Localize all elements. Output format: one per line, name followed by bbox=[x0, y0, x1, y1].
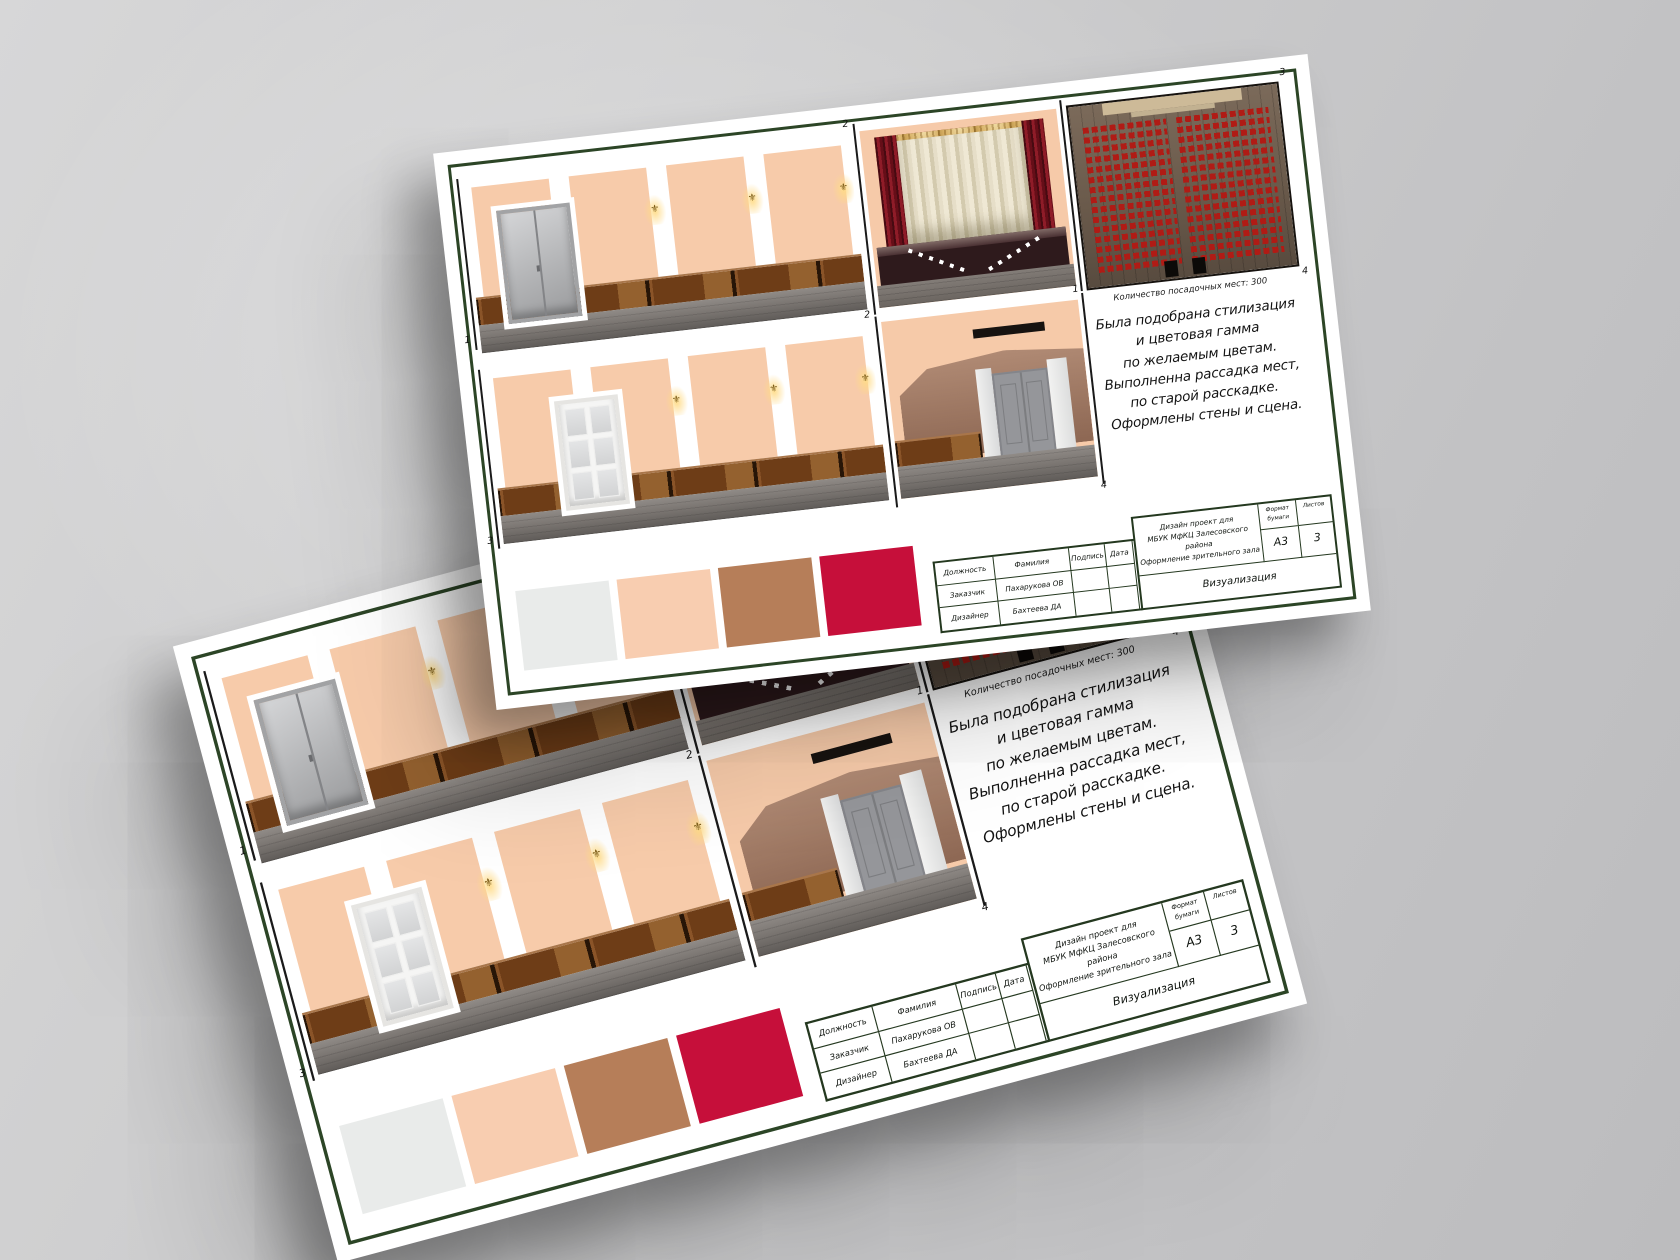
wall-panel bbox=[494, 809, 612, 953]
color-swatch-white bbox=[515, 580, 617, 670]
view-number: 1 bbox=[1072, 283, 1079, 295]
wall-panel bbox=[569, 168, 659, 286]
sconce-icon: ⚜ bbox=[642, 194, 667, 226]
door-pane bbox=[571, 471, 595, 501]
gray-double-door bbox=[496, 202, 582, 324]
designer-signature-cell bbox=[1074, 589, 1112, 616]
door-pane bbox=[564, 407, 588, 437]
projection-window bbox=[973, 322, 1046, 339]
stage-steps-right bbox=[988, 233, 1044, 271]
door-pane bbox=[363, 907, 394, 944]
sheet-count-value: 3 bbox=[1299, 522, 1336, 556]
plan-entrance bbox=[1192, 257, 1207, 274]
view-number: 2 bbox=[842, 118, 849, 130]
paper-format-value: A3 bbox=[1261, 526, 1301, 560]
projection-window bbox=[811, 733, 893, 764]
wall-panel bbox=[666, 156, 756, 274]
door-pane bbox=[373, 942, 404, 979]
elevation-view-exit-wall: ⚜ ⚜ ⚜ bbox=[484, 323, 890, 544]
sconce-icon: ⚜ bbox=[664, 384, 689, 416]
sheet-count-label: Листов bbox=[1296, 496, 1333, 526]
view-number: 4 bbox=[980, 900, 990, 914]
stage-view bbox=[859, 109, 1076, 308]
wall-panel bbox=[688, 347, 778, 465]
door-pane bbox=[410, 970, 441, 1007]
view-number: 1 bbox=[915, 684, 925, 698]
main-curtain bbox=[897, 127, 1034, 247]
door-pane bbox=[391, 899, 422, 936]
door-pane bbox=[568, 439, 592, 469]
door-pane bbox=[589, 404, 613, 434]
notes-text: Была подобрана стилизация и цветовая гам… bbox=[930, 654, 1219, 856]
view-number: 2 bbox=[685, 748, 695, 762]
header-date: Дата bbox=[1105, 541, 1135, 567]
sheet-content: ⚜ ⚜ ⚜ bbox=[462, 83, 1342, 681]
designer-date-cell bbox=[1110, 586, 1140, 612]
plan-entrance bbox=[1164, 260, 1179, 277]
customer-date-cell bbox=[1107, 563, 1137, 589]
white-glazed-door bbox=[554, 394, 630, 511]
view-number: 3 bbox=[487, 535, 494, 547]
seating-plan bbox=[1066, 81, 1300, 290]
view-number: 4 bbox=[1100, 479, 1107, 491]
sheet-count-cell: Листов 3 bbox=[1296, 496, 1336, 557]
seat-block-right bbox=[1176, 107, 1285, 267]
door-pane bbox=[400, 935, 431, 972]
paper-format-cell: Формат бумаги A3 bbox=[1258, 500, 1302, 562]
wall-panel bbox=[763, 145, 853, 263]
seat-block-left bbox=[1082, 118, 1182, 277]
background: ⚜ ⚜ ⚜ bbox=[0, 0, 1680, 1260]
sconce-icon: ⚜ bbox=[853, 363, 878, 395]
color-swatch-white bbox=[339, 1098, 466, 1214]
color-swatch-peach bbox=[617, 569, 719, 659]
door-pane bbox=[382, 977, 413, 1014]
sheet-front: ⚜ ⚜ ⚜ bbox=[433, 54, 1371, 710]
view-number: 4 bbox=[1301, 265, 1308, 277]
color-swatch-peach bbox=[451, 1068, 578, 1184]
door-panel bbox=[1026, 380, 1049, 441]
color-swatch-crimson bbox=[676, 1008, 803, 1124]
sconce-icon: ⚜ bbox=[831, 172, 856, 204]
color-swatch-tan bbox=[718, 557, 820, 647]
door-pane bbox=[596, 468, 620, 498]
wall-panel bbox=[785, 336, 875, 454]
notes-text: Была подобрана стилизация и цветовая гам… bbox=[1080, 291, 1322, 438]
wall-panel bbox=[602, 780, 720, 924]
view-number: 3 bbox=[1279, 67, 1286, 79]
view-number: 1 bbox=[464, 335, 471, 347]
back-wall-view bbox=[881, 300, 1098, 499]
color-swatch-crimson bbox=[819, 546, 921, 636]
view-number: 2 bbox=[864, 309, 871, 321]
stage-steps-left bbox=[908, 249, 970, 274]
presentation-sheet: ⚜ ⚜ ⚜ bbox=[433, 54, 1371, 710]
color-swatch-tan bbox=[564, 1038, 691, 1154]
sconce-icon: ⚜ bbox=[761, 373, 786, 405]
door-panel bbox=[1000, 383, 1023, 444]
sconce-icon: ⚜ bbox=[740, 183, 765, 215]
door-pane bbox=[592, 436, 616, 466]
